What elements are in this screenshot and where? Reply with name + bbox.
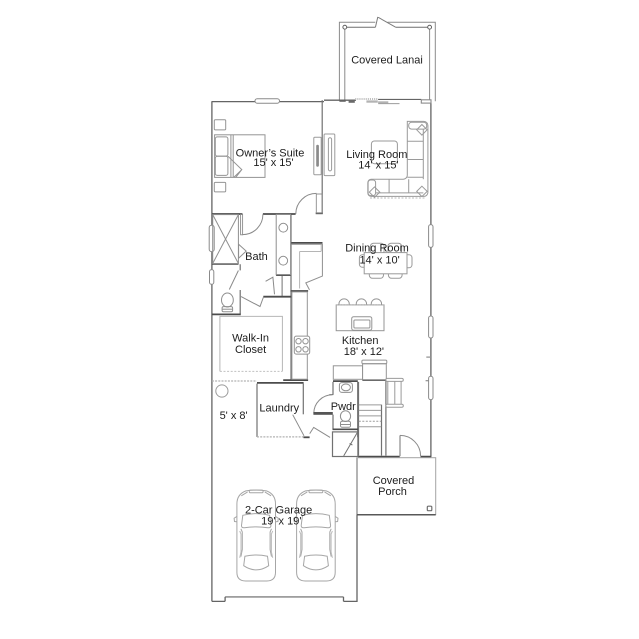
svg-text:Closet: Closet [235,344,266,356]
svg-text:Bath: Bath [245,251,268,263]
svg-text:15' x 15': 15' x 15' [253,157,293,169]
svg-text:Covered: Covered [373,475,415,487]
svg-text:19' x 19': 19' x 19' [261,515,301,527]
svg-text:Porch: Porch [378,486,407,498]
svg-text:18' x 12': 18' x 12' [344,346,384,358]
svg-text:Laundry: Laundry [259,402,299,414]
svg-text:14' x 15': 14' x 15' [358,160,398,172]
svg-text:14' x 10': 14' x 10' [359,255,399,267]
svg-text:Dining Room: Dining Room [345,243,409,255]
svg-text:Walk-In: Walk-In [232,333,269,345]
svg-text:Pwdr: Pwdr [331,401,356,413]
svg-text:Covered Lanai: Covered Lanai [351,55,423,67]
svg-text:5' x 8': 5' x 8' [220,410,248,422]
